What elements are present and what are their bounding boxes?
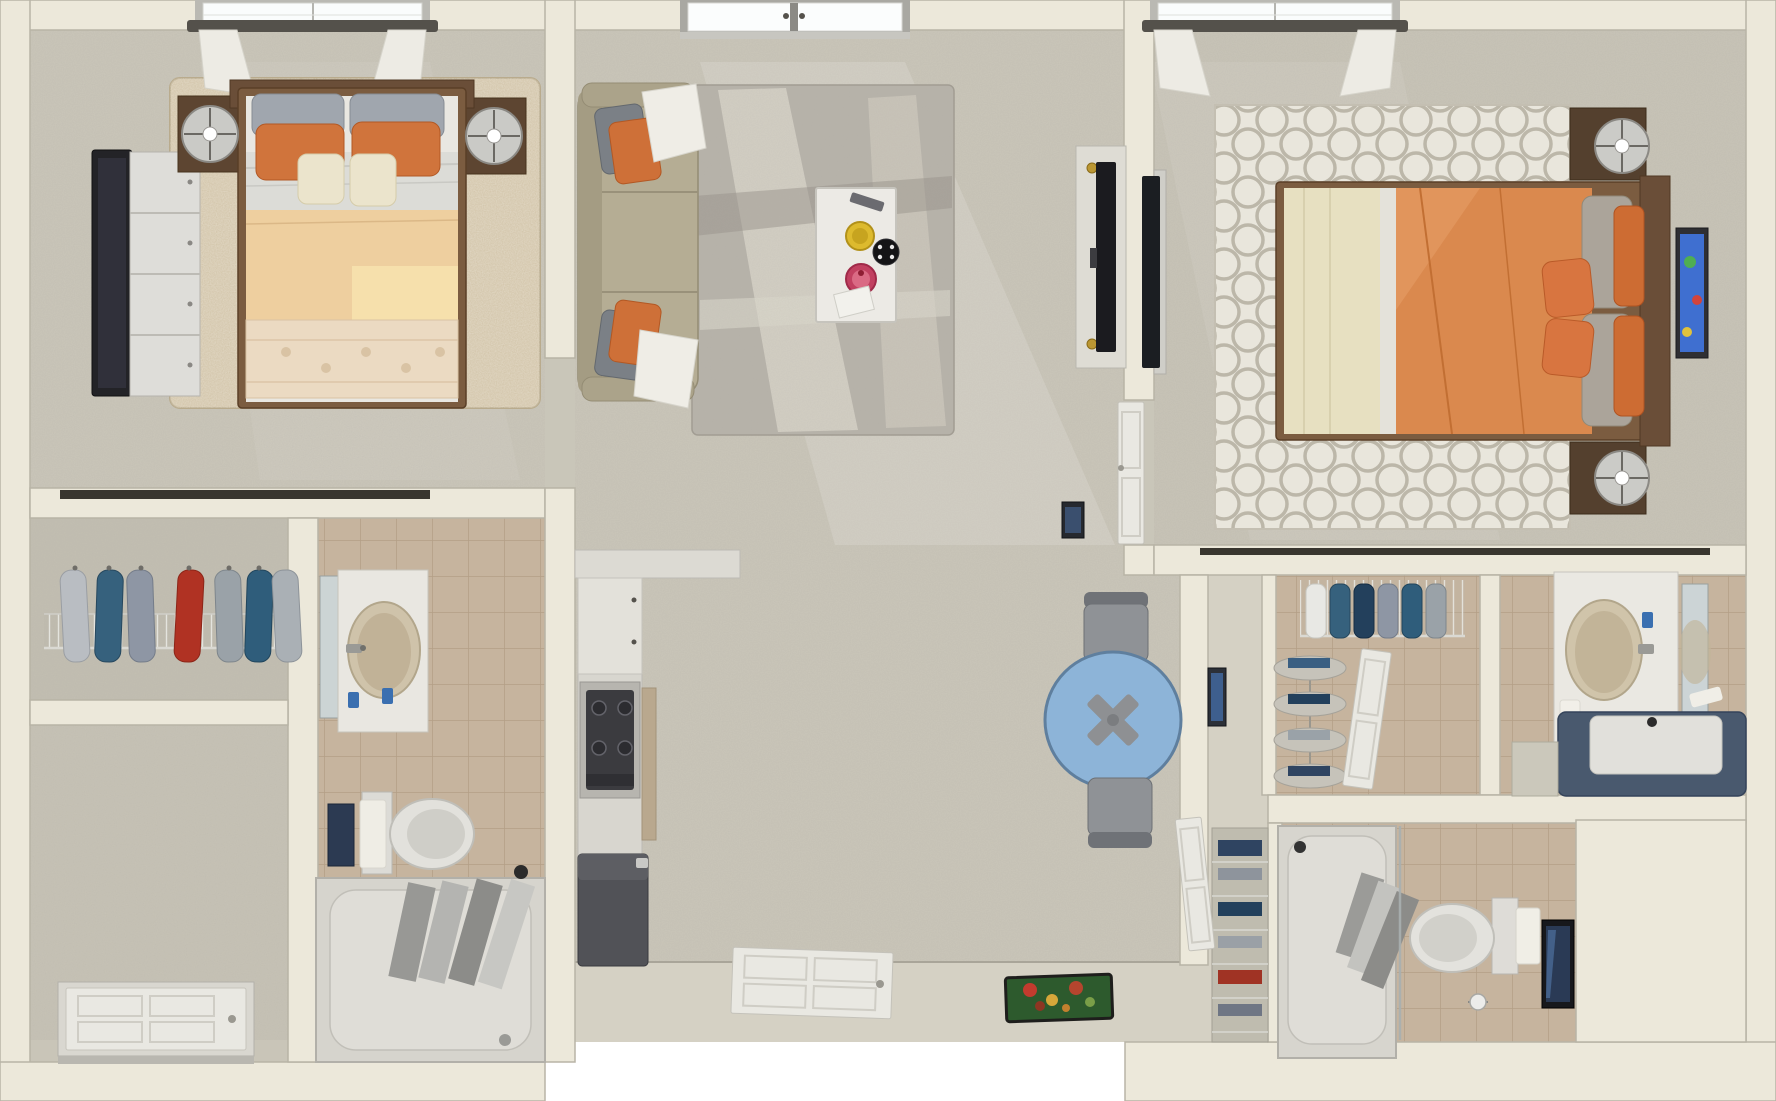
folded-towels: [1218, 840, 1262, 856]
wall-closet2-bathroom2: [1480, 575, 1500, 795]
wall-corner-block: [1576, 820, 1746, 1042]
hanging-clothes: [126, 570, 155, 663]
drawer-knob: [188, 363, 193, 368]
blanket-motif: [361, 347, 371, 357]
door-threshold: [58, 1056, 254, 1064]
wall-art-canvas: [1065, 507, 1081, 533]
entry-vinyl: [575, 962, 1268, 1042]
cabinet-handle: [632, 640, 637, 645]
hanging-clothes: [1306, 584, 1326, 638]
entry-shape: [1046, 994, 1058, 1006]
panel-screw: [1087, 339, 1097, 349]
tub-faucet: [1647, 717, 1657, 727]
toilet-seat: [1419, 914, 1477, 962]
hanging-clothes: [1426, 584, 1446, 638]
table-base-hub: [1107, 714, 1119, 726]
lamp-bulb: [203, 127, 217, 141]
throw-pillow: [642, 84, 706, 162]
patio-door-mullion: [790, 3, 798, 31]
mirror-reflection: [1679, 620, 1711, 684]
entry-shape: [1035, 1001, 1045, 1011]
burner: [618, 701, 632, 715]
sink-basin: [1575, 611, 1633, 693]
drawer-knob: [188, 302, 193, 307]
blanket-motif: [401, 363, 411, 373]
soap-dispenser: [1642, 612, 1653, 628]
folded-towels: [1218, 936, 1262, 948]
wall-closet1-south: [30, 700, 288, 725]
hanger-hook: [139, 566, 144, 571]
checkered-plate: [873, 239, 899, 265]
foyer-door: [66, 988, 246, 1050]
blanket-motif: [321, 363, 331, 373]
soap-dispenser: [382, 688, 393, 704]
wall-left: [0, 0, 30, 1101]
shower-fixture: [1294, 841, 1306, 853]
hanger-hook: [73, 566, 78, 571]
wall-corner: [1124, 545, 1154, 575]
faucet: [346, 644, 362, 653]
wall-art: [328, 804, 354, 866]
hanging-clothes: [1378, 584, 1398, 638]
door-knob: [876, 980, 884, 988]
welcome-mat: [1005, 974, 1112, 1022]
throw-pillow-orange: [1541, 318, 1595, 379]
soap-dispenser: [348, 692, 359, 708]
wall-bottom-right: [1125, 1042, 1776, 1101]
folded-clothes: [1288, 730, 1330, 740]
living-room-shape: [890, 255, 894, 259]
bedroom2-shape: [1692, 295, 1702, 305]
burner: [592, 741, 606, 755]
hanging-clothes: [60, 569, 91, 662]
living-room-shape: [878, 245, 882, 249]
toilet-towel: [360, 800, 386, 868]
folded-towels: [1218, 970, 1262, 984]
hanging-clothes: [1402, 584, 1422, 638]
wall-right: [1746, 0, 1776, 1101]
entry-shape: [1023, 983, 1037, 997]
bedroom2-shape: [1682, 327, 1692, 337]
drawer-knob: [188, 180, 193, 185]
bedroom2-shape: [1684, 256, 1696, 268]
pillow-cream: [298, 154, 344, 204]
hanger-hook: [227, 566, 232, 571]
living-room-shape: [878, 255, 882, 259]
faucet-head: [360, 645, 366, 651]
toilet-tank: [1492, 898, 1518, 974]
threshold-track: [1200, 548, 1710, 555]
pillow-cream: [350, 154, 396, 206]
mirror: [320, 576, 340, 718]
tv-screen: [98, 158, 126, 388]
chair-back: [1088, 832, 1152, 848]
hanging-clothes: [174, 569, 205, 662]
hanger-hook: [257, 566, 262, 571]
front-door: [731, 947, 893, 1019]
patio-door-handle: [783, 13, 789, 19]
toilet-seat: [407, 809, 465, 859]
drawer-knob: [188, 241, 193, 246]
wall-bedroom1-living: [545, 0, 575, 358]
entry-shape: [1062, 1004, 1070, 1012]
wall-kitchen-west: [545, 488, 575, 1062]
foot-blanket: [246, 320, 458, 398]
dining-chair: [1088, 778, 1152, 836]
door-knob: [1118, 465, 1124, 471]
pillow-orange: [1614, 206, 1644, 306]
entry-shape: [1085, 997, 1095, 1007]
burner: [618, 741, 632, 755]
burner: [592, 701, 606, 715]
wall-hall-closet2: [1262, 575, 1276, 795]
living-room-shape: [890, 245, 894, 249]
hanging-clothes: [1330, 584, 1350, 638]
hanging-clothes: [244, 570, 273, 663]
sink-basin: [357, 613, 411, 691]
pillow-orange: [1614, 316, 1644, 416]
refrigerator-handle: [636, 858, 648, 868]
floorplan-svg: [0, 0, 1776, 1101]
hanger-hook: [107, 566, 112, 571]
wall-bottom-left: [0, 1062, 545, 1101]
counter-top: [575, 550, 740, 578]
panel-screw: [1087, 163, 1097, 173]
upper-cabinet: [578, 578, 642, 674]
folded-towels: [1218, 902, 1262, 916]
blanket-motif: [281, 347, 291, 357]
counter-edge: [642, 688, 656, 840]
blanket-motif: [435, 347, 445, 357]
closet-door-track: [60, 490, 430, 499]
lamp-bulb: [1615, 471, 1629, 485]
faucet: [1638, 644, 1654, 654]
hanging-clothes: [272, 569, 303, 662]
cabinet-handle: [632, 598, 637, 603]
cherry: [858, 270, 864, 276]
toilet-paper: [1470, 994, 1486, 1010]
hanging-clothes: [1354, 584, 1374, 638]
hanging-clothes: [214, 570, 243, 663]
lamp-bulb: [1615, 139, 1629, 153]
throw-pillow-orange: [1541, 258, 1595, 319]
patio-threshold: [680, 32, 910, 39]
tv: [1142, 176, 1160, 368]
entry-shape: [1069, 981, 1083, 995]
floorplan-3d-render: [0, 0, 1776, 1101]
lamp-bulb: [487, 129, 501, 143]
wall-art-canvas: [1211, 673, 1223, 721]
folded-clothes: [1288, 766, 1330, 776]
folded-towels: [1218, 868, 1262, 880]
patio-door-handle: [799, 13, 805, 19]
throw-pillow: [634, 330, 698, 408]
hanger-hook: [187, 566, 192, 571]
folded-clothes: [1288, 658, 1330, 668]
wall-midright-south: [1268, 795, 1746, 823]
folded-towels: [1218, 1004, 1262, 1016]
folded-clothes: [1288, 694, 1330, 704]
tub-step: [1512, 742, 1558, 796]
tub-drain: [499, 1034, 511, 1046]
entry-opening: [545, 1042, 1125, 1101]
tv: [1096, 162, 1116, 352]
stove-panel: [586, 774, 634, 786]
tub-faucet: [514, 865, 528, 879]
foot-blanket-cream: [1284, 188, 1380, 434]
sheet-fold: [1380, 188, 1396, 434]
door-knob: [228, 1015, 236, 1023]
foyer: [58, 982, 254, 1064]
hanging-clothes: [94, 570, 123, 663]
yellow-bowl-inner: [852, 228, 868, 244]
towel: [1516, 908, 1540, 964]
comforter-highlight: [352, 266, 458, 322]
tv-mount: [1090, 248, 1097, 268]
